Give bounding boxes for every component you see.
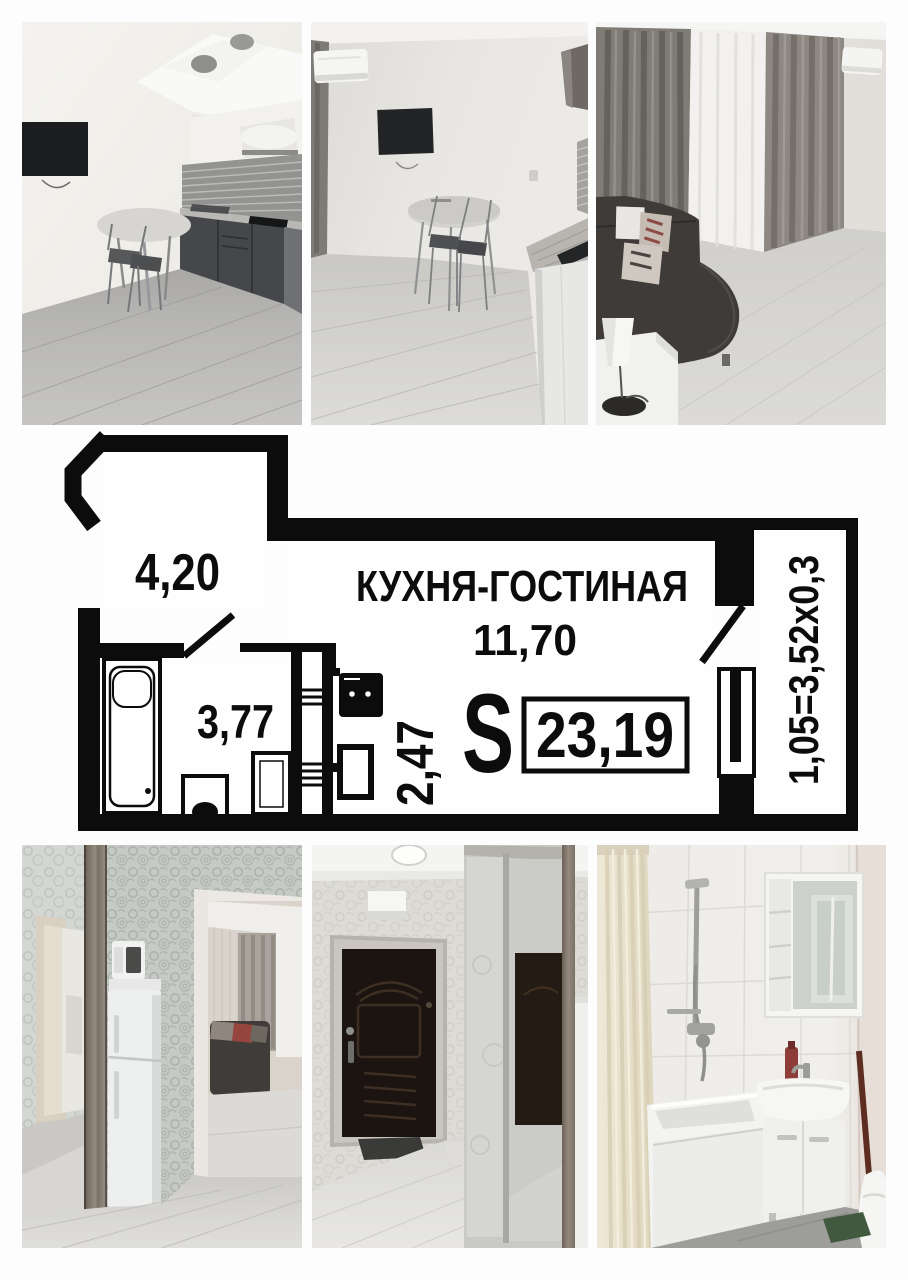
svg-text:1,05=3,52х0,3: 1,05=3,52х0,3 (780, 555, 827, 785)
svg-text:КУХНЯ-ГОСТИНАЯ: КУХНЯ-ГОСТИНАЯ (356, 562, 688, 611)
svg-text:S: S (462, 671, 514, 796)
svg-text:3,77: 3,77 (197, 695, 274, 748)
svg-text:11,70: 11,70 (473, 616, 577, 665)
svg-text:23,19: 23,19 (536, 699, 674, 771)
svg-text:2,47: 2,47 (387, 720, 445, 806)
svg-text:4,20: 4,20 (135, 544, 220, 602)
